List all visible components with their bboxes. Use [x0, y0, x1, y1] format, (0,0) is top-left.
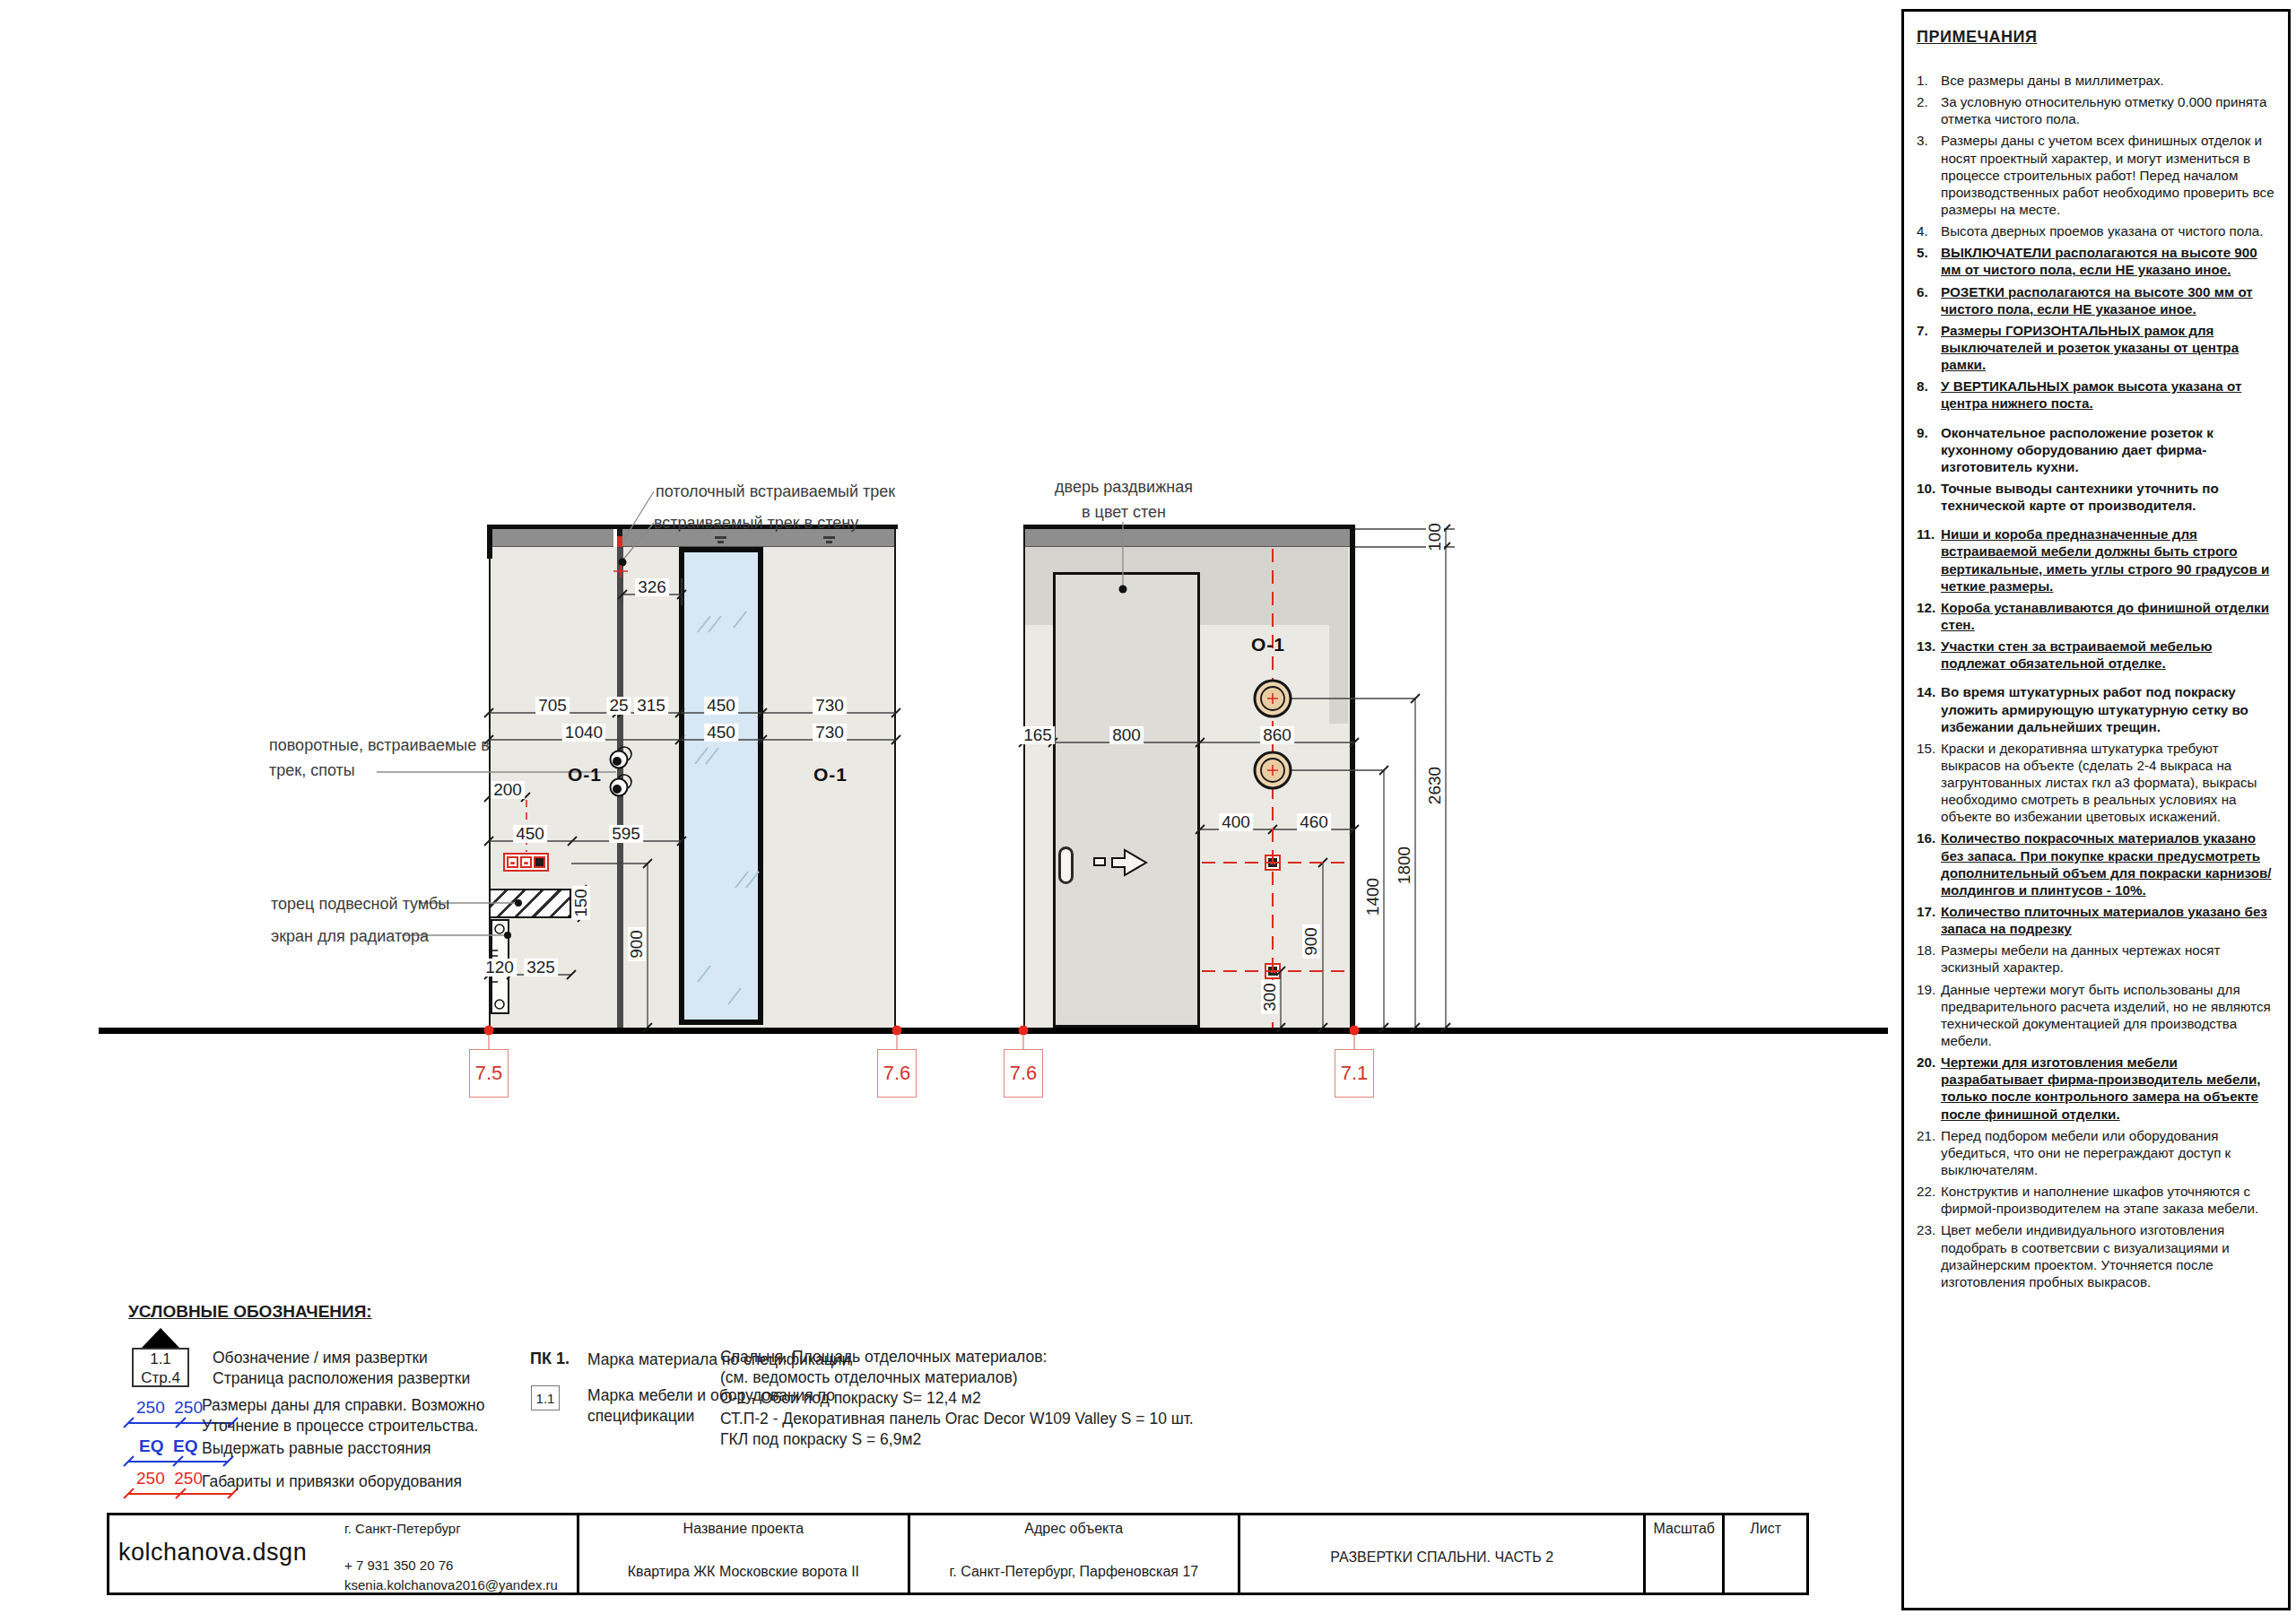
dimension-text: 900 [1302, 924, 1320, 959]
elevation-symbol-box: 1.1 Стр.4 [132, 1348, 189, 1387]
note-item: 15.Краски и декоративняа штукатурка треб… [1917, 740, 2279, 826]
dimension-text: 450 [704, 724, 738, 742]
glass-slashes [695, 612, 759, 1004]
dimension-text: 200 [491, 781, 525, 799]
note-item: 6.РОЗЕТКИ располагаются на высоте 300 мм… [1917, 283, 2279, 317]
legend-label-3: Выдержать равные расстояния [202, 1438, 431, 1459]
titleblock-project-cell: Название проекта Квартира ЖК Московские … [579, 1515, 909, 1593]
finish-mark: О-1 [813, 764, 848, 785]
dimension-text: 450 [513, 825, 547, 843]
titleblock-designer-cell: kolchanova.dsgn г. Санкт-Петербург + 7 9… [109, 1515, 579, 1593]
finish-mark: О-1 [1251, 634, 1285, 655]
dimension-text: 315 [634, 697, 668, 715]
title-block: kolchanova.dsgn г. Санкт-Петербург + 7 9… [107, 1513, 1809, 1595]
legend-pk-mark: ПК 1. [530, 1350, 570, 1368]
legend-red-dim-text: 250 250 [136, 1468, 203, 1490]
dimension-text: 2630 [1426, 764, 1444, 807]
spot-lights [611, 747, 632, 796]
designer-contact: г. Санкт-Петербург + 7 931 350 20 76 kse… [344, 1519, 558, 1596]
designer-email: ksenia.kolchanova2016@yandex.ru [344, 1575, 558, 1596]
elevation-marker: 7.5 [469, 1049, 509, 1098]
dimension-text: 400 [1219, 813, 1253, 831]
note-item: 8.У ВЕРТИКАЛЬНЫХ рамок высота указана от… [1917, 378, 2279, 412]
dimension-text: 300 [1261, 980, 1279, 1014]
red-axis-lines [526, 549, 1348, 1028]
address-value: г. Санкт-Петербург, Парфеновская 17 [910, 1564, 1238, 1580]
note-item: 23.Цвет мебели индивидуального изготовле… [1917, 1221, 2279, 1290]
dimension-text: 460 [1297, 813, 1331, 831]
note-item: 3.Размеры даны с учетом всех финишных от… [1917, 132, 2279, 218]
materials-line: Спальня. Площадь отделочных материалов: [720, 1347, 1047, 1367]
note-item: 19.Данные чертежи могут быть использован… [1917, 981, 2279, 1050]
sheet-title: РАЗВЕРТКИ СПАЛЬНИ. ЧАСТЬ 2 [1240, 1549, 1643, 1566]
dimension-text: 1040 [562, 724, 605, 742]
note-item: 2.За условную относительную отметку 0.00… [1917, 93, 2279, 127]
dimension-text: 325 [524, 959, 558, 976]
project-value: Квартира ЖК Московские ворота II [579, 1564, 907, 1580]
leader-dots [504, 559, 1127, 940]
elevation-symbol-number: 1.1 [134, 1350, 187, 1368]
note-item: 13.Участки стен за встраиваемой мебелью … [1917, 638, 2279, 672]
label-sliding-door: дверь раздвижная в цвет стен [1055, 475, 1193, 525]
dimension-text: 730 [813, 697, 847, 715]
scale-header: Масштаб [1646, 1521, 1722, 1537]
marker-dots [484, 1026, 1360, 1050]
note-item: 5.ВЫКЛЮЧАТЕЛИ располагаются на высоте 90… [1917, 244, 2279, 278]
notes-panel: ПРИМЕЧАНИЯ 1.Все размеры даны в миллимет… [1901, 9, 2291, 1610]
label-spots: поворотные, встраиваемые в трек, споты [269, 733, 490, 784]
legend-label-4: Габариты и привязки оборудования [202, 1471, 462, 1492]
label-radiator-screen: экран для радиатора [271, 924, 429, 950]
door-slide-arrow [1094, 850, 1146, 875]
note-item: 20.Чертежи для изготовления мебели разра… [1917, 1054, 2279, 1123]
note-item: 11.Ниши и короба предназначенные для вст… [1917, 525, 2279, 595]
dimension-text: 165 [1021, 726, 1055, 744]
dimension-text: 800 [1109, 726, 1144, 744]
dimension-text: 595 [609, 825, 643, 843]
designer-phone: + 7 931 350 20 76 [344, 1556, 558, 1576]
notes-title: ПРИМЕЧАНИЯ [1917, 28, 2279, 47]
drawing-sheet: потолочный встраиваемый трек встраиваемы… [0, 0, 2296, 1623]
dimension-text: 326 [635, 578, 669, 596]
label-ceiling-track: потолочный встраиваемый трек [656, 480, 895, 505]
note-item: 7.Размеры ГОРИЗОНТАЛЬНЫХ рамок для выклю… [1917, 322, 2279, 373]
dimension-text: 860 [1260, 726, 1294, 744]
note-item: 16.Количество покрасочных материалов ука… [1917, 829, 2279, 898]
band-marks [715, 536, 835, 543]
titleblock-sheet-cell: РАЗВЕРТКИ СПАЛЬНИ. ЧАСТЬ 2 [1240, 1515, 1646, 1593]
elevation-symbol-page: Стр.4 [134, 1368, 187, 1387]
note-item: 4.Высота дверных проемов указана от чист… [1917, 222, 2279, 239]
legend-title: УСЛОВНЫЕ ОБОЗНАЧЕНИЯ: [128, 1302, 372, 1322]
dimension-text: 730 [813, 724, 847, 742]
legend-label-2: Размеры даны для справки. Возможно Уточн… [202, 1395, 484, 1436]
label-cabinet-end: торец подвесной тумбы [271, 892, 449, 917]
materials-line: СТ.П-2 - Декоративная панель Orac Decor … [720, 1409, 1194, 1429]
note-item: 10.Точные выводы сантехники уточнить по … [1917, 480, 2279, 514]
designer-logo: kolchanova.dsgn [118, 1539, 307, 1567]
label-wall-track: встраиваемый трек в стену [654, 511, 858, 536]
materials-line: ГКЛ под покраску S = 6,9м2 [720, 1429, 921, 1450]
finish-mark: О-1 [568, 764, 602, 785]
materials-line: О-1 - Обои под покраску S= 12,4 м2 [720, 1388, 981, 1409]
note-item: 9.Окончательное расположение розеток к к… [1917, 424, 2279, 475]
titleblock-address-cell: Адрес объекта г. Санкт-Петербург, Парфен… [910, 1515, 1240, 1593]
dimension-text: 450 [704, 697, 738, 715]
list-header: Лист [1725, 1521, 1806, 1537]
note-item: 18.Размеры мебели на данных чертежах нос… [1917, 942, 2279, 976]
legend-eq-text: EQ EQ [139, 1436, 197, 1458]
project-header: Название проекта [579, 1521, 907, 1537]
titleblock-scale-cell: Масштаб [1646, 1515, 1725, 1593]
dimension-text: 705 [535, 697, 570, 715]
elevation-marker: 7.6 [1004, 1049, 1043, 1098]
track-red-cross [613, 565, 628, 577]
dimension-text: 1800 [1396, 844, 1413, 887]
dimension-text: 1400 [1364, 875, 1382, 918]
titleblock-list-cell: Лист [1725, 1515, 1806, 1593]
note-item: 17.Количество плиточных материалов указа… [1917, 903, 2279, 937]
note-item: 12.Короба устанавливаются до финишной от… [1917, 599, 2279, 633]
dimension-text: 900 [628, 927, 646, 961]
designer-city: г. Санкт-Петербург [344, 1519, 558, 1540]
note-item: 21.Перед подбором мебели или оборудовани… [1917, 1127, 2279, 1178]
legend-blue-dim-text: 250 250 [136, 1397, 203, 1419]
materials-line: (см. ведомость отделочных материалов) [720, 1367, 1018, 1388]
dimension-text: 25 [606, 697, 631, 715]
legend-label-1: Обозначение / имя развертки Страница рас… [213, 1348, 470, 1389]
dimension-text: 150 [572, 886, 590, 920]
dimension-text: 100 [1426, 520, 1444, 554]
legend-furniture-mark-box: 1.1 [531, 1385, 560, 1410]
note-item: 22.Конструктив и наполнение шкафов уточн… [1917, 1183, 2279, 1217]
elevation-symbol-triangle [142, 1328, 179, 1348]
elevation-marker: 7.1 [1335, 1049, 1374, 1098]
elevation-marker: 7.6 [877, 1049, 917, 1098]
note-item: 1.Все размеры даны в миллиметрах. [1917, 72, 2279, 89]
notes-list: 1.Все размеры даны в миллиметрах.2.За ус… [1917, 72, 2279, 1290]
address-header: Адрес объекта [910, 1521, 1238, 1537]
dimension-text: 120 [483, 959, 517, 976]
note-item: 14.Во время штукатурных работ под покрас… [1917, 683, 2279, 734]
